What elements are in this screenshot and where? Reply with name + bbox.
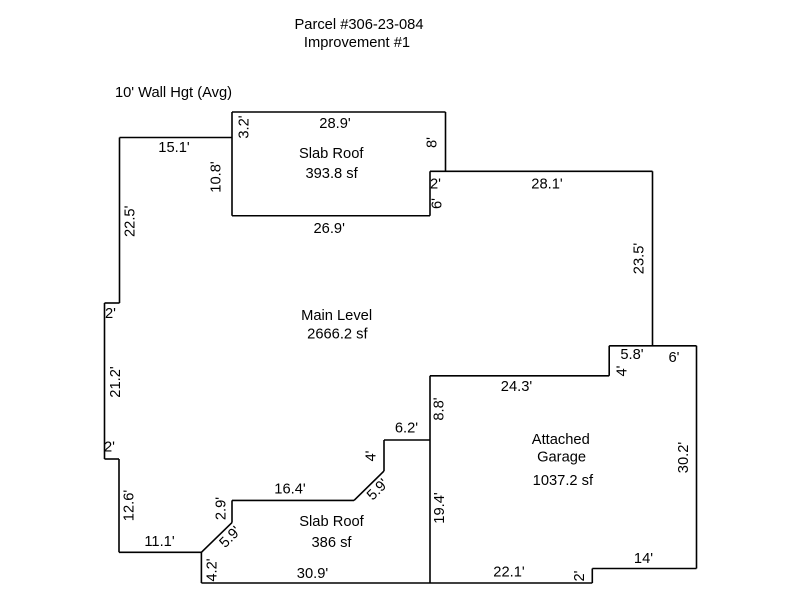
svg-text:22.1': 22.1' <box>493 565 525 581</box>
svg-text:10.8': 10.8' <box>208 161 224 193</box>
svg-text:11.1': 11.1' <box>144 534 174 550</box>
svg-text:30.2': 30.2' <box>676 442 692 474</box>
svg-text:5.8': 5.8' <box>620 347 643 363</box>
svg-text:8.8': 8.8' <box>431 397 447 420</box>
svg-text:21.2': 21.2' <box>108 366 124 398</box>
svg-text:28.1': 28.1' <box>531 177 563 193</box>
svg-text:15.1': 15.1' <box>158 140 190 156</box>
svg-text:Slab Roof: Slab Roof <box>299 146 364 162</box>
svg-text:Slab Roof: Slab Roof <box>299 514 364 530</box>
svg-text:Improvement #1: Improvement #1 <box>304 35 410 51</box>
svg-text:2': 2' <box>104 440 115 456</box>
svg-text:393.8 sf: 393.8 sf <box>305 166 358 182</box>
svg-text:1037.2 sf: 1037.2 sf <box>533 473 594 489</box>
svg-text:2': 2' <box>430 177 441 193</box>
svg-text:6': 6' <box>429 198 445 209</box>
svg-text:2': 2' <box>105 306 116 322</box>
svg-text:4.2': 4.2' <box>204 558 220 581</box>
svg-text:24.3': 24.3' <box>501 379 533 395</box>
svg-text:19.4': 19.4' <box>432 492 448 524</box>
svg-text:6': 6' <box>669 350 680 366</box>
svg-text:2666.2 sf: 2666.2 sf <box>307 327 368 343</box>
svg-text:Garage: Garage <box>537 450 586 466</box>
svg-text:4': 4' <box>614 365 630 376</box>
svg-text:Main Level: Main Level <box>301 308 372 324</box>
svg-text:2.9': 2.9' <box>213 497 229 520</box>
svg-text:23.5': 23.5' <box>631 243 647 275</box>
svg-text:30.9': 30.9' <box>297 566 329 582</box>
svg-text:14': 14' <box>634 551 653 567</box>
svg-text:Attached: Attached <box>532 432 590 448</box>
svg-text:10' Wall Hgt (Avg): 10' Wall Hgt (Avg) <box>115 85 232 101</box>
svg-text:12.6': 12.6' <box>121 490 137 522</box>
svg-text:8': 8' <box>424 137 440 148</box>
svg-text:28.9': 28.9' <box>319 116 351 132</box>
svg-text:16.4': 16.4' <box>274 481 306 497</box>
svg-text:386 sf: 386 sf <box>311 535 352 551</box>
svg-text:4': 4' <box>363 450 379 461</box>
svg-text:3.2': 3.2' <box>236 115 252 138</box>
svg-text:26.9': 26.9' <box>314 221 346 237</box>
svg-text:2': 2' <box>572 570 588 581</box>
svg-text:22.5': 22.5' <box>123 205 139 237</box>
svg-text:6.2': 6.2' <box>395 421 418 437</box>
svg-text:Parcel #306-23-084: Parcel #306-23-084 <box>294 17 423 33</box>
